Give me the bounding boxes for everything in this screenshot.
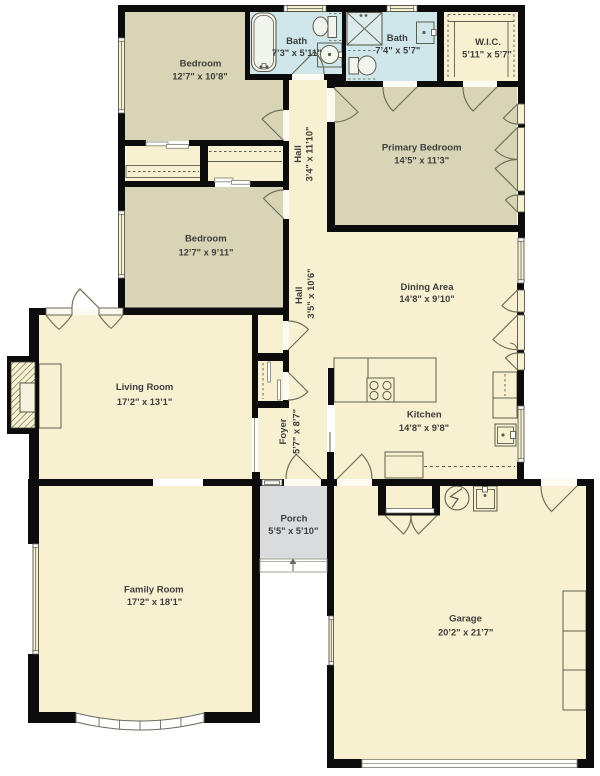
svg-text:17’2" x 18’1": 17’2" x 18’1" <box>127 597 182 607</box>
svg-text:7’4" x 5’7": 7’4" x 5’7" <box>375 46 420 56</box>
svg-text:Bedroom: Bedroom <box>185 234 227 245</box>
svg-text:Family Room: Family Room <box>124 585 184 596</box>
svg-text:Foyer: Foyer <box>278 418 289 444</box>
svg-text:5’11" x 5’7": 5’11" x 5’7" <box>462 50 512 60</box>
svg-text:Kitchen: Kitchen <box>407 410 442 421</box>
svg-text:Bedroom: Bedroom <box>180 59 222 70</box>
svg-text:7’3" x 5’11": 7’3" x 5’11" <box>272 48 322 58</box>
svg-text:5’5" x 5’10": 5’5" x 5’10" <box>268 526 318 536</box>
svg-text:3’4" x 11’10": 3’4" x 11’10" <box>305 127 315 182</box>
svg-text:12’7" x 9’11": 12’7" x 9’11" <box>179 248 234 258</box>
svg-text:Porch: Porch <box>281 514 308 525</box>
svg-text:12’7" x 10’8": 12’7" x 10’8" <box>172 72 227 82</box>
svg-text:Living Room: Living Room <box>116 382 174 393</box>
svg-text:Bath: Bath <box>387 33 408 44</box>
svg-text:20’2" x 21’7": 20’2" x 21’7" <box>438 628 493 638</box>
svg-text:Garage: Garage <box>449 614 482 625</box>
svg-text:14’8" x 9’8": 14’8" x 9’8" <box>399 423 449 433</box>
svg-text:14’8" x 9’10": 14’8" x 9’10" <box>399 294 454 304</box>
svg-text:3’5" x 10’6": 3’5" x 10’6" <box>306 268 316 318</box>
svg-text:Hall: Hall <box>294 287 305 304</box>
svg-text:Hall: Hall <box>293 145 304 162</box>
svg-text:Dining Area: Dining Area <box>401 282 455 293</box>
svg-text:W.I.C.: W.I.C. <box>475 37 501 48</box>
svg-text:Primary Bedroom: Primary Bedroom <box>382 142 462 153</box>
svg-text:5’7" x 8’7": 5’7" x 8’7" <box>292 409 302 454</box>
svg-text:17’2" x 13’1": 17’2" x 13’1" <box>117 397 172 407</box>
svg-text:14’5" x 11’3": 14’5" x 11’3" <box>394 156 449 166</box>
svg-text:Bath: Bath <box>286 36 307 47</box>
